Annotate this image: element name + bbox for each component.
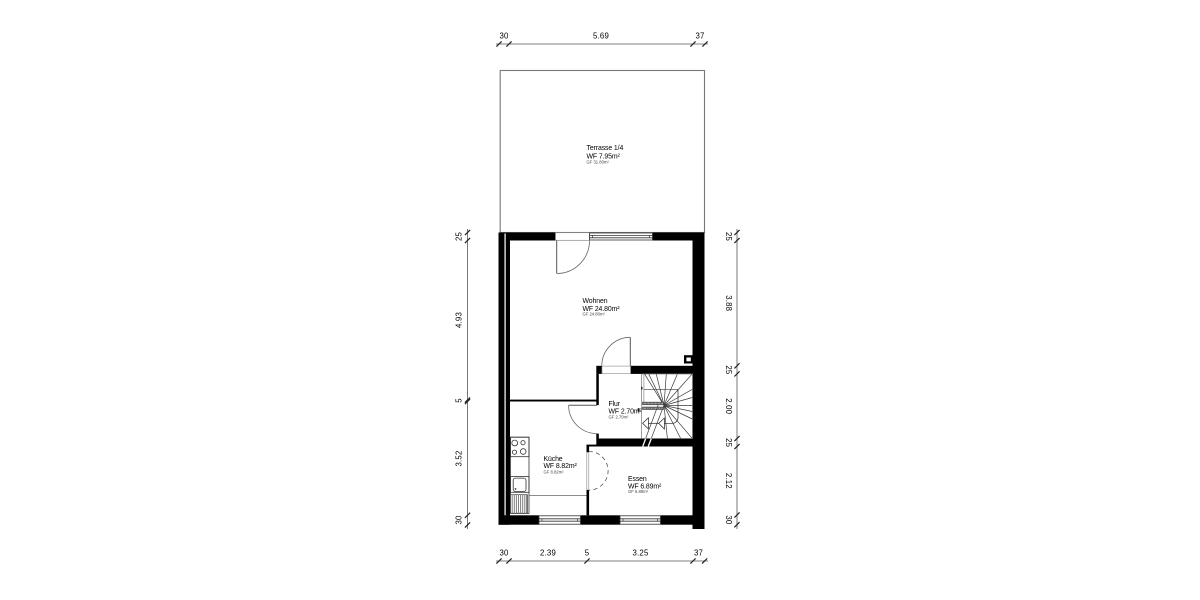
- svg-text:5: 5: [585, 549, 590, 558]
- svg-text:5.69: 5.69: [593, 32, 609, 41]
- svg-text:Wohnen: Wohnen: [583, 298, 608, 305]
- svg-text:2.00: 2.00: [724, 398, 733, 414]
- svg-text:37: 37: [694, 549, 703, 558]
- svg-text:25: 25: [455, 232, 464, 242]
- svg-text:GF 2.70m²: GF 2.70m²: [609, 415, 630, 420]
- svg-text:Terrasse 1/4: Terrasse 1/4: [587, 145, 624, 152]
- svg-text:30: 30: [499, 549, 509, 558]
- svg-text:Essen: Essen: [628, 476, 647, 483]
- svg-text:3.88: 3.88: [724, 295, 733, 311]
- svg-text:2.39: 2.39: [540, 549, 556, 558]
- svg-text:25: 25: [724, 365, 733, 375]
- svg-text:30: 30: [499, 32, 509, 41]
- svg-text:25: 25: [724, 232, 733, 242]
- svg-text:GF 31.80m²: GF 31.80m²: [587, 159, 610, 164]
- svg-text:25: 25: [724, 438, 733, 448]
- svg-text:30: 30: [455, 515, 464, 525]
- svg-text:30: 30: [724, 515, 733, 525]
- svg-text:GF 24.80m²: GF 24.80m²: [583, 311, 606, 316]
- svg-text:37: 37: [695, 32, 704, 41]
- svg-text:3.25: 3.25: [633, 549, 649, 558]
- svg-text:3.52: 3.52: [455, 451, 464, 467]
- svg-text:5: 5: [455, 398, 464, 403]
- svg-text:GF 8.82m²: GF 8.82m²: [544, 469, 565, 474]
- svg-text:GF 6.89m²: GF 6.89m²: [628, 489, 649, 494]
- svg-text:Flur: Flur: [609, 401, 621, 408]
- svg-text:2.12: 2.12: [724, 473, 733, 489]
- svg-text:4.93: 4.93: [455, 312, 464, 328]
